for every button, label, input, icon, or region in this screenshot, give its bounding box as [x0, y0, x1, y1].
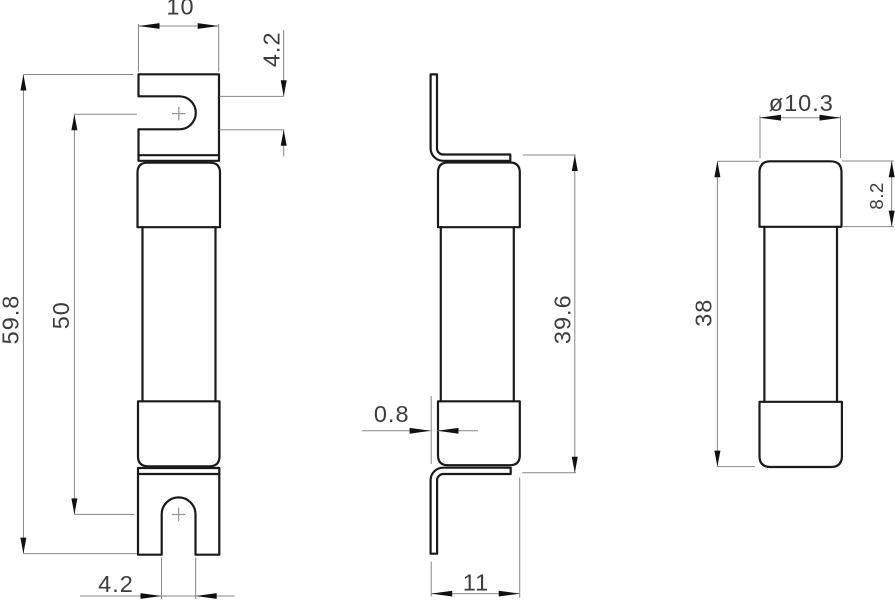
- svg-text:4.2: 4.2: [258, 31, 284, 67]
- svg-text:ø10.3: ø10.3: [769, 90, 834, 116]
- svg-text:39.6: 39.6: [549, 294, 575, 344]
- svg-text:8.2: 8.2: [866, 182, 887, 210]
- svg-text:50: 50: [48, 301, 74, 329]
- svg-text:0.8: 0.8: [374, 401, 410, 427]
- svg-text:10: 10: [166, 0, 194, 20]
- svg-text:59.8: 59.8: [0, 295, 23, 345]
- svg-text:4.2: 4.2: [98, 571, 134, 597]
- svg-text:38: 38: [690, 299, 716, 327]
- svg-text:11: 11: [463, 569, 489, 595]
